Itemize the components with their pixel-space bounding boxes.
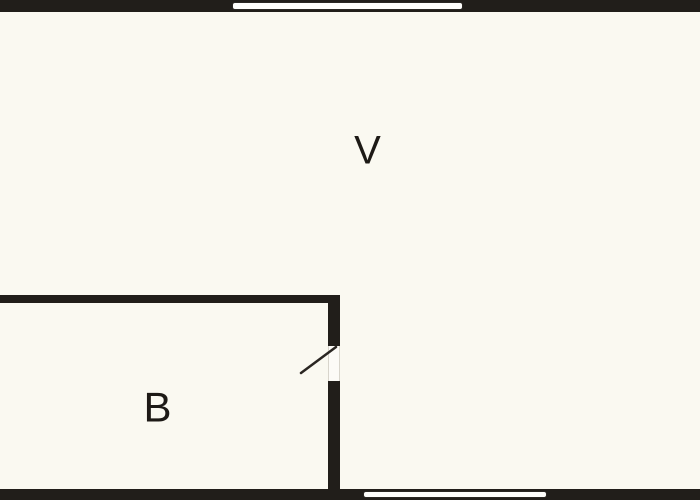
window-bottom [363, 491, 547, 498]
room-v-region [0, 12, 700, 295]
room-v-label: V [354, 130, 382, 170]
wall-bottom-exterior [0, 489, 700, 500]
floor-plan-canvas: V B [0, 0, 700, 500]
wall-interior-lower-segment [328, 381, 340, 500]
wall-interior-upper-segment [328, 295, 340, 346]
room-b-label: B [143, 386, 172, 428]
window-top [232, 2, 463, 10]
wall-room-b-top [0, 295, 340, 303]
door-opening [328, 346, 340, 381]
